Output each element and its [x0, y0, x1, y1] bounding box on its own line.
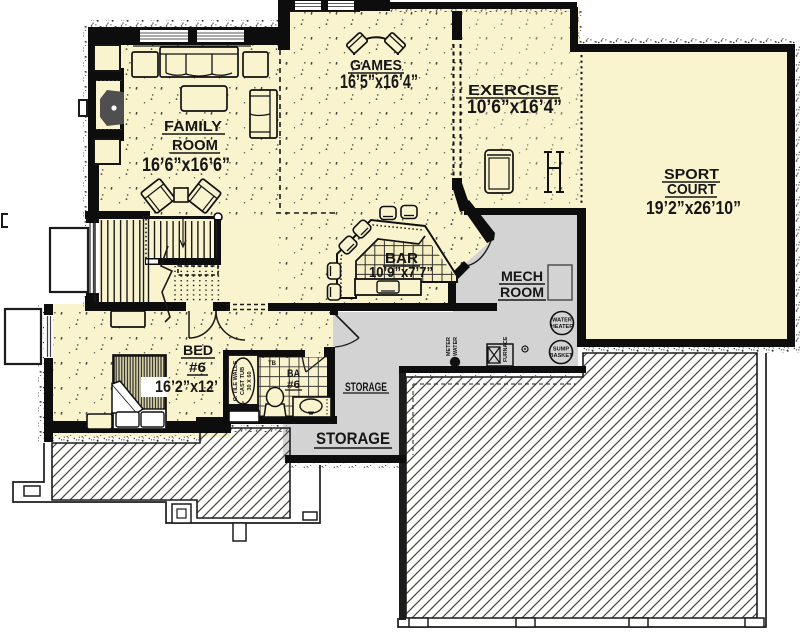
svg-text:10’6”x16’4”: 10’6”x16’4” [467, 97, 562, 118]
svg-text:BASKET: BASKET [550, 353, 574, 359]
svg-text:ROOM: ROOM [500, 284, 544, 300]
svg-text:#6: #6 [287, 379, 300, 391]
svg-text:METER: METER [446, 337, 452, 356]
svg-text:19’2”x26’10”: 19’2”x26’10” [646, 198, 741, 218]
svg-text:SUMP: SUMP [553, 347, 569, 353]
svg-text:#6: #6 [189, 359, 206, 375]
svg-text:16’5”x16’4”: 16’5”x16’4” [340, 72, 418, 93]
svg-text:TB: TB [268, 361, 277, 367]
svg-text:STORAGE: STORAGE [345, 380, 387, 394]
svg-text:16’2”x12’: 16’2”x12’ [155, 377, 218, 396]
svg-text:ROOM: ROOM [172, 137, 218, 154]
svg-text:WATER: WATER [453, 337, 459, 356]
svg-text:STORAGE: STORAGE [316, 429, 390, 448]
svg-text:CAST TUB: CAST TUB [240, 367, 246, 395]
svg-text:10’9”x7’7”: 10’9”x7’7” [369, 264, 433, 281]
svg-text:C. TILE WALLS: C. TILE WALLS [233, 361, 239, 402]
svg-text:FAMILY: FAMILY [164, 118, 222, 135]
svg-text:COURT: COURT [667, 181, 716, 198]
svg-text:WATER: WATER [552, 318, 572, 324]
svg-text:HEATER: HEATER [551, 324, 574, 330]
svg-text:FURNACE: FURNACE [503, 336, 509, 362]
svg-text:BED: BED [183, 342, 213, 358]
svg-text:16’6”x16’6”: 16’6”x16’6” [142, 155, 230, 176]
svg-text:30 X 60: 30 X 60 [247, 371, 253, 390]
svg-text:MECH: MECH [501, 268, 543, 284]
